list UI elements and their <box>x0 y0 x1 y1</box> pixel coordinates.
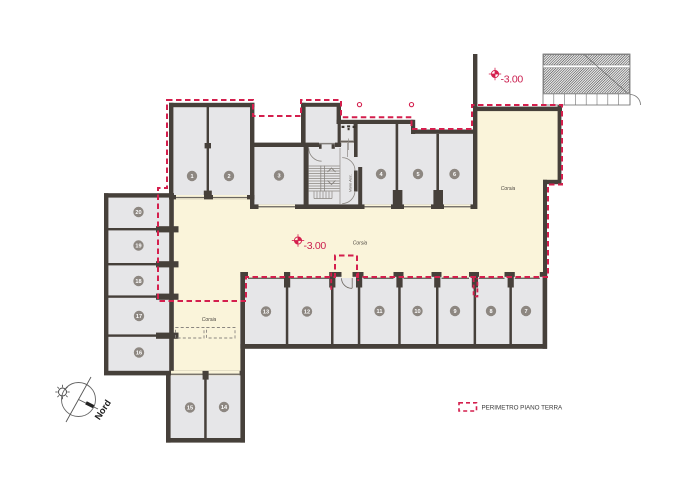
svg-text:20: 20 <box>135 210 141 216</box>
svg-text:16: 16 <box>136 351 142 357</box>
svg-text:Vano Asc.: Vano Asc. <box>348 174 353 192</box>
svg-text:PERIMETRO PIANO TERRA: PERIMETRO PIANO TERRA <box>482 405 564 412</box>
svg-text:2: 2 <box>227 174 230 180</box>
svg-text:11: 11 <box>377 309 383 315</box>
svg-text:Corsia: Corsia <box>501 186 516 192</box>
svg-text:19: 19 <box>135 244 141 250</box>
svg-text:18: 18 <box>135 279 141 285</box>
svg-text:10: 10 <box>414 309 420 315</box>
svg-text:7: 7 <box>524 309 527 315</box>
svg-text:Corsia: Corsia <box>353 241 368 247</box>
svg-text:8: 8 <box>489 309 492 315</box>
svg-text:17: 17 <box>136 314 142 320</box>
svg-text:-3.00: -3.00 <box>501 74 524 86</box>
svg-text:5: 5 <box>416 172 419 178</box>
svg-text:3: 3 <box>277 174 280 180</box>
svg-text:Corsia: Corsia <box>202 317 217 323</box>
svg-text:14: 14 <box>221 405 228 411</box>
svg-text:6: 6 <box>453 172 456 178</box>
svg-text:12: 12 <box>304 310 310 316</box>
svg-text:15: 15 <box>187 406 193 412</box>
svg-text:13: 13 <box>263 310 269 316</box>
svg-text:1: 1 <box>190 174 193 180</box>
svg-text:9: 9 <box>453 309 456 315</box>
svg-text:-3.00: -3.00 <box>304 240 327 252</box>
